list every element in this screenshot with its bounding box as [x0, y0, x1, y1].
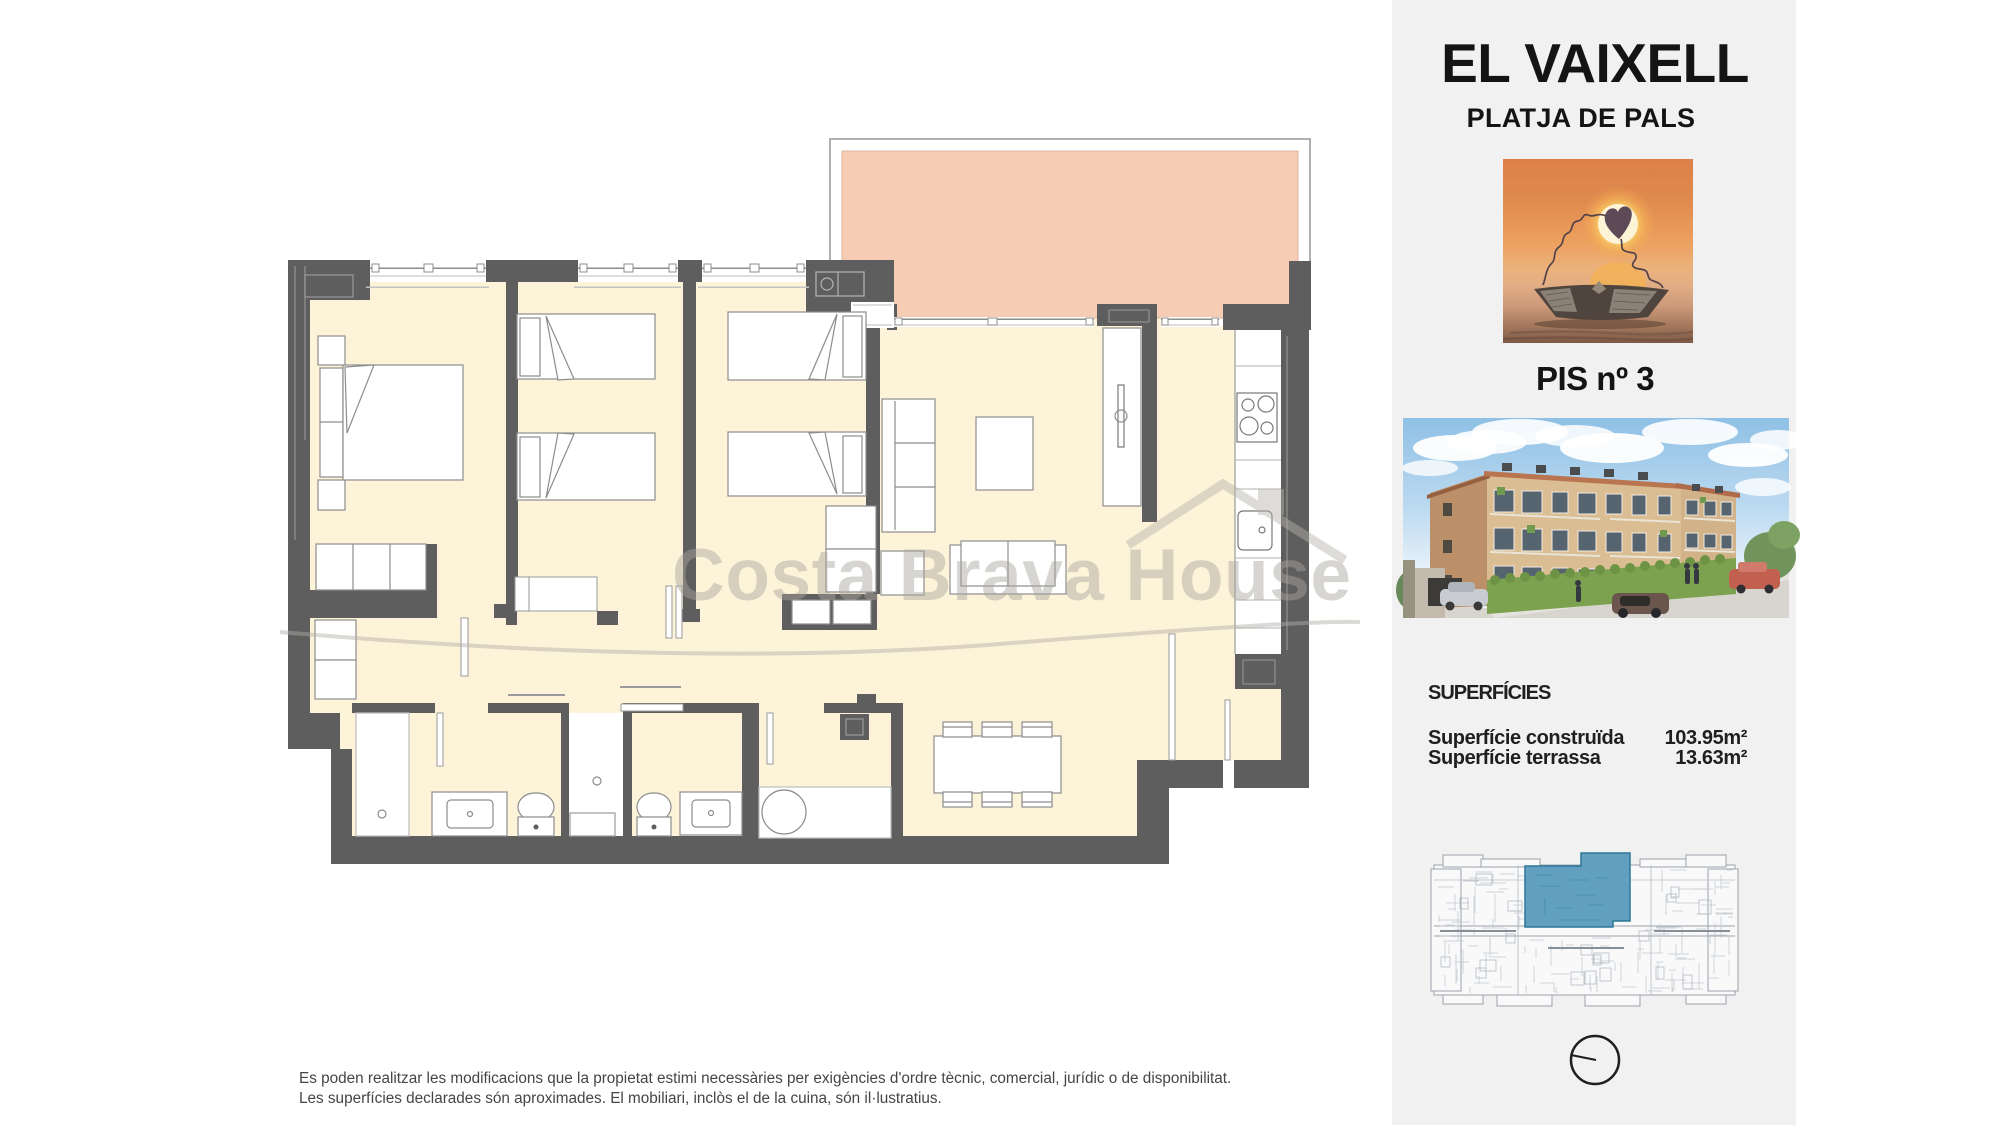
svg-text:Es poden realitzar les modific: Es poden realitzar les modificacions que…	[299, 1070, 1231, 1087]
svg-text:Les superfícies declarades són: Les superfícies declarades són aproximad…	[299, 1090, 942, 1107]
svg-text:103.95m²: 103.95m²	[1665, 727, 1748, 749]
svg-text:PIS nº 3: PIS nº 3	[1536, 360, 1654, 397]
svg-text:EL VAIXELL: EL VAIXELL	[1441, 32, 1749, 94]
svg-text:Superfície construïda: Superfície construïda	[1428, 727, 1625, 749]
svg-text:Superfície terrassa: Superfície terrassa	[1428, 747, 1602, 769]
svg-text:PLATJA DE PALS: PLATJA DE PALS	[1467, 103, 1696, 133]
svg-text:13.63m²: 13.63m²	[1675, 747, 1747, 769]
svg-text:Costa Brava House: Costa Brava House	[672, 535, 1352, 616]
svg-text:SUPERFÍCIES: SUPERFÍCIES	[1428, 681, 1551, 704]
